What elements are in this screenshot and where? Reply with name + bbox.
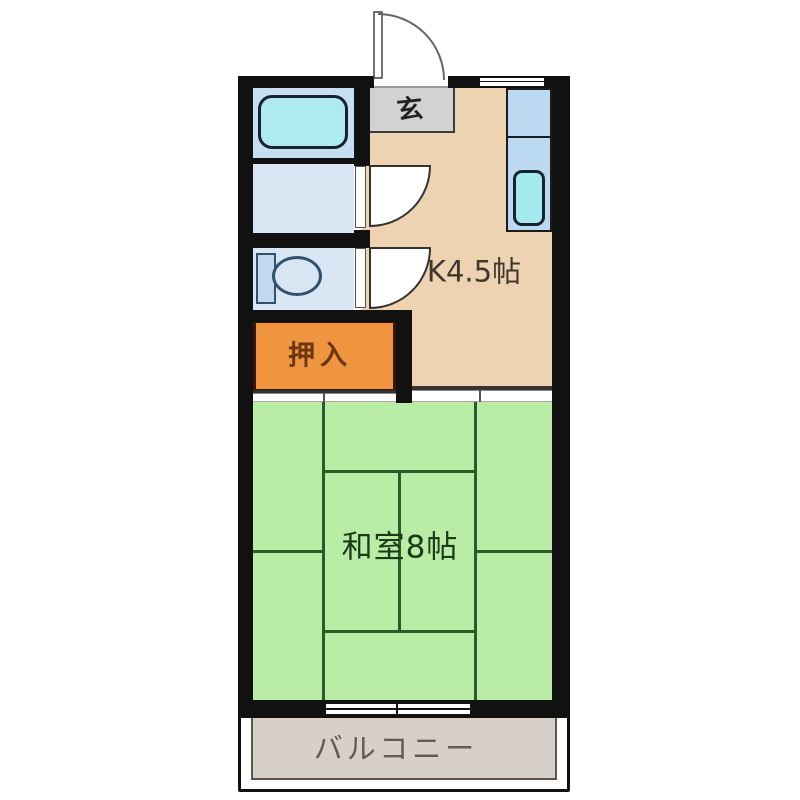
kitchen-sliding-divider xyxy=(479,390,481,402)
entrance-door-arc xyxy=(378,14,444,80)
bathtub xyxy=(258,95,348,149)
wall-closet-kitchen xyxy=(396,310,412,403)
counter-divider xyxy=(506,136,552,138)
entrance-opening xyxy=(374,76,448,88)
top-window xyxy=(478,76,546,88)
floorplan-canvas: 玄 K4.5帖 押入 和室8帖 バルコニー xyxy=(0,0,800,800)
kitchen-sliding-doors xyxy=(412,390,552,402)
balcony-label: バルコニー xyxy=(314,735,478,764)
balcony-window-line xyxy=(326,708,470,710)
kitchen-label: K4.5帖 xyxy=(427,258,521,287)
kitchen-sink xyxy=(513,170,545,226)
japanese-room-label: 和室8帖 xyxy=(342,533,459,564)
tatami-line xyxy=(325,630,474,633)
toilet-door-leaf xyxy=(355,248,366,308)
wall-inner-vertical-upper xyxy=(354,88,370,166)
wall-wash-toilet xyxy=(238,233,370,248)
wall-bath-wash xyxy=(253,158,354,164)
wall-left xyxy=(238,76,253,718)
tatami-line xyxy=(253,550,322,553)
closet-sliding-divider xyxy=(323,393,325,402)
top-window-line xyxy=(480,81,544,82)
wall-toilet-closet xyxy=(238,310,412,322)
toilet-bowl xyxy=(272,256,322,296)
washroom-door-leaf xyxy=(355,166,366,228)
genkan-label: 玄 xyxy=(396,96,425,125)
balcony-window-divider xyxy=(396,704,398,714)
tatami-line xyxy=(322,402,325,700)
entrance-door-leaf xyxy=(374,12,382,78)
closet-label: 押入 xyxy=(288,343,352,370)
tatami-line xyxy=(477,550,554,553)
wall-right xyxy=(552,76,570,718)
washroom xyxy=(253,164,354,233)
